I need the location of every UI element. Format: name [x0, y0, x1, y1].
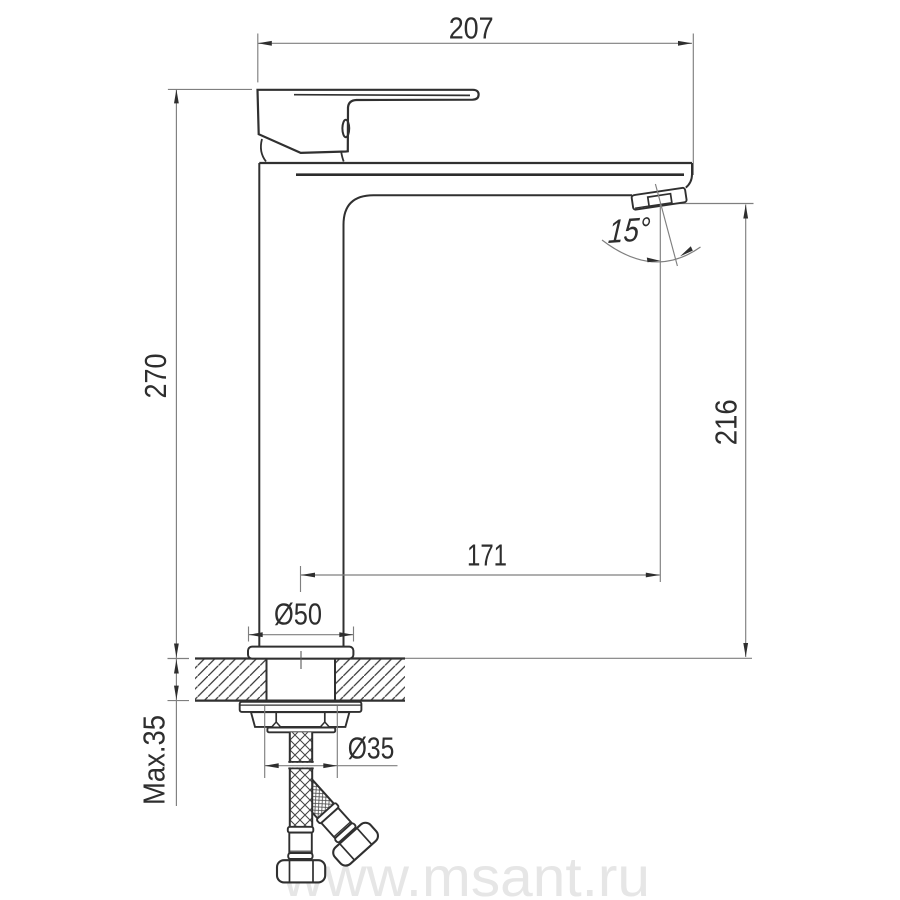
svg-text:207: 207 — [449, 10, 494, 45]
svg-text:216: 216 — [709, 399, 744, 445]
svg-text:Ø35: Ø35 — [348, 731, 395, 766]
svg-text:171: 171 — [467, 538, 507, 573]
svg-text:15°: 15° — [607, 211, 651, 251]
svg-text:Max.35: Max.35 — [137, 715, 172, 805]
svg-text:Ø50: Ø50 — [274, 597, 322, 632]
svg-text:270: 270 — [138, 354, 173, 399]
